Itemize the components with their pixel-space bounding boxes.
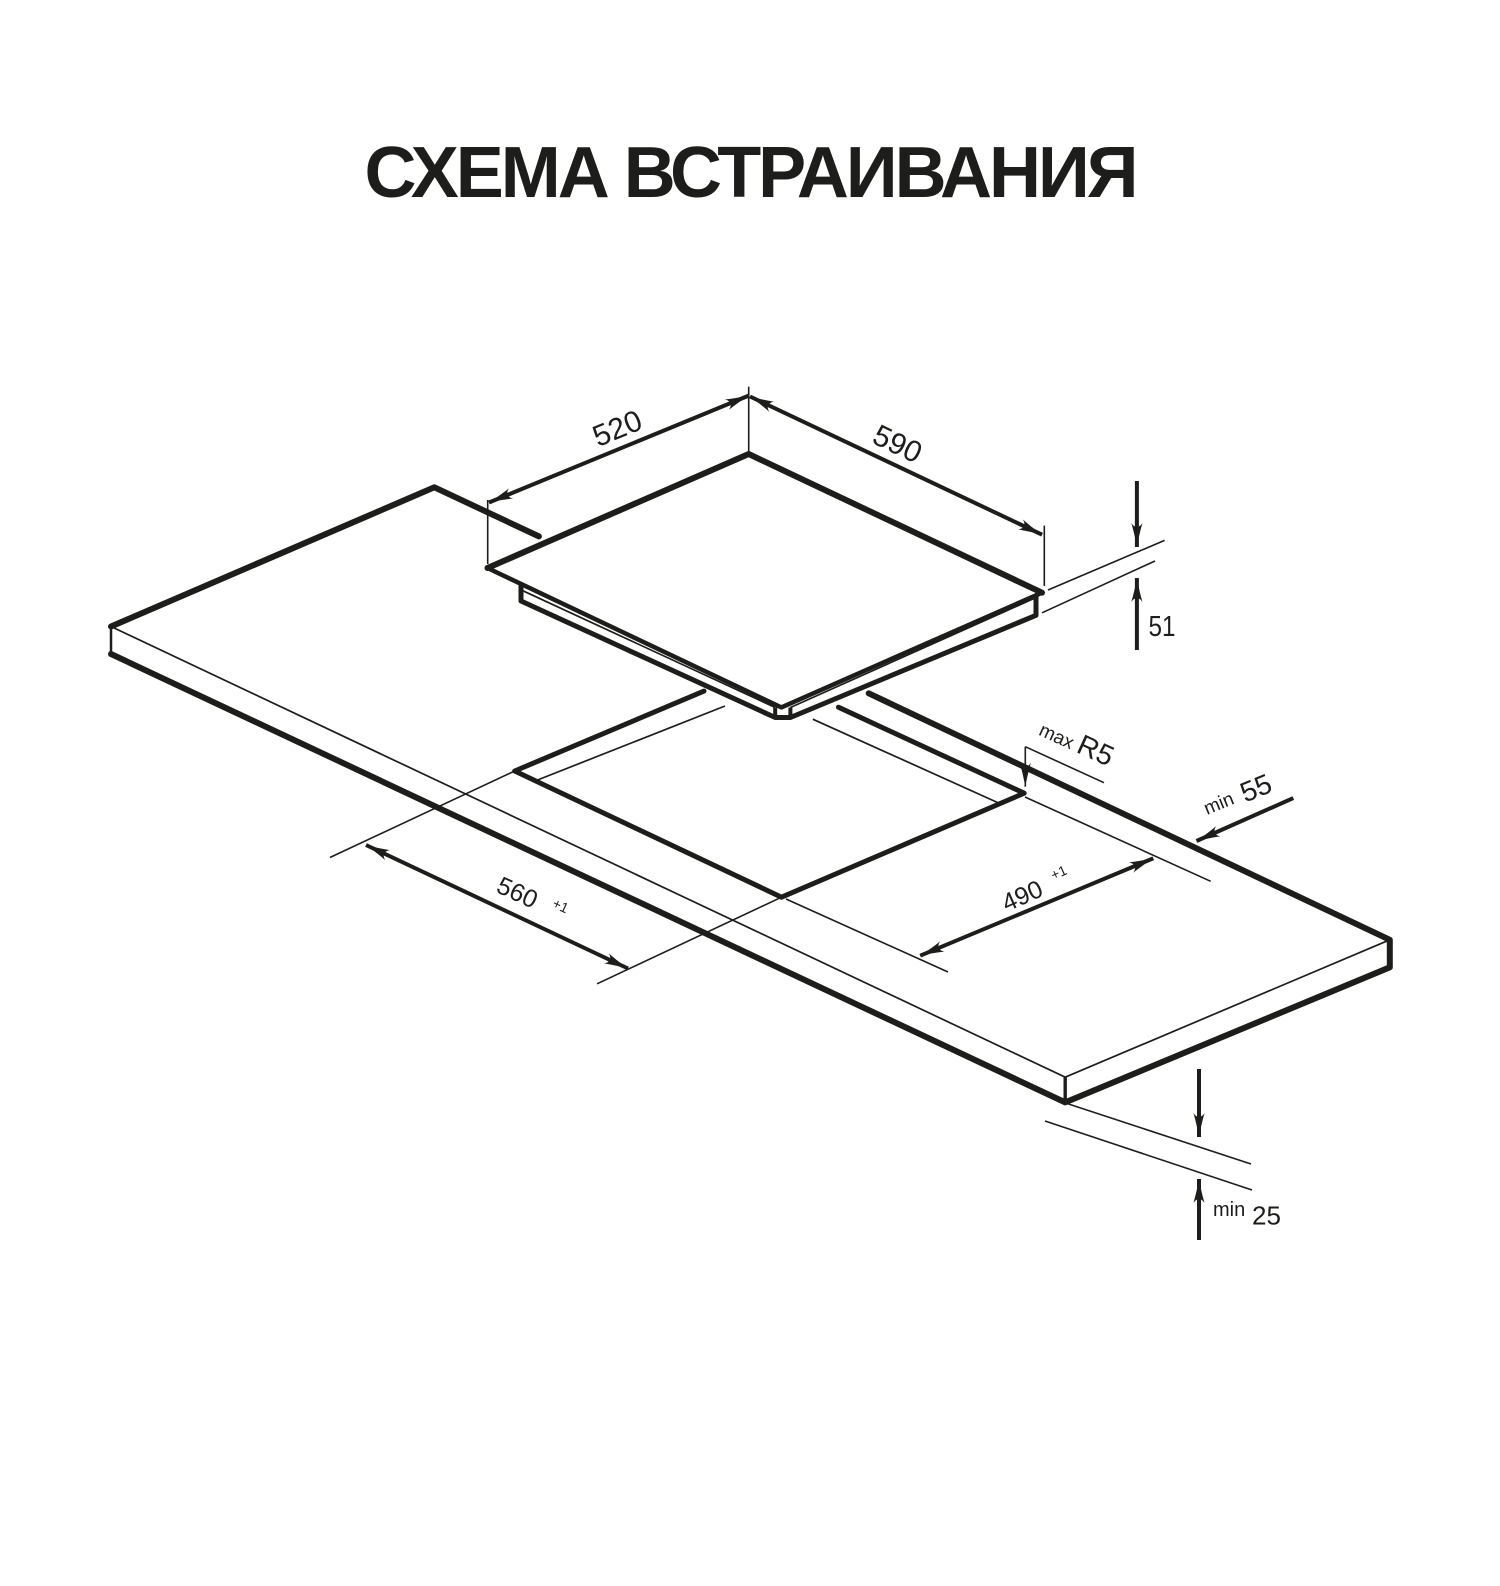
svg-text:25: 25 [1252, 1201, 1281, 1231]
svg-text:max R5: max R5 [1035, 712, 1119, 773]
svg-text:590: 590 [868, 419, 927, 470]
svg-text:min 55: min 55 [1199, 768, 1277, 824]
svg-text:СХЕМА ВСТРАИВАНИЯ: СХЕМА ВСТРАИВАНИЯ [364, 133, 1135, 213]
svg-text:520: 520 [588, 404, 647, 454]
svg-text:560+1: 560+1 [492, 871, 571, 928]
svg-text:51: 51 [1149, 611, 1176, 643]
svg-text:min: min [1213, 1199, 1245, 1221]
